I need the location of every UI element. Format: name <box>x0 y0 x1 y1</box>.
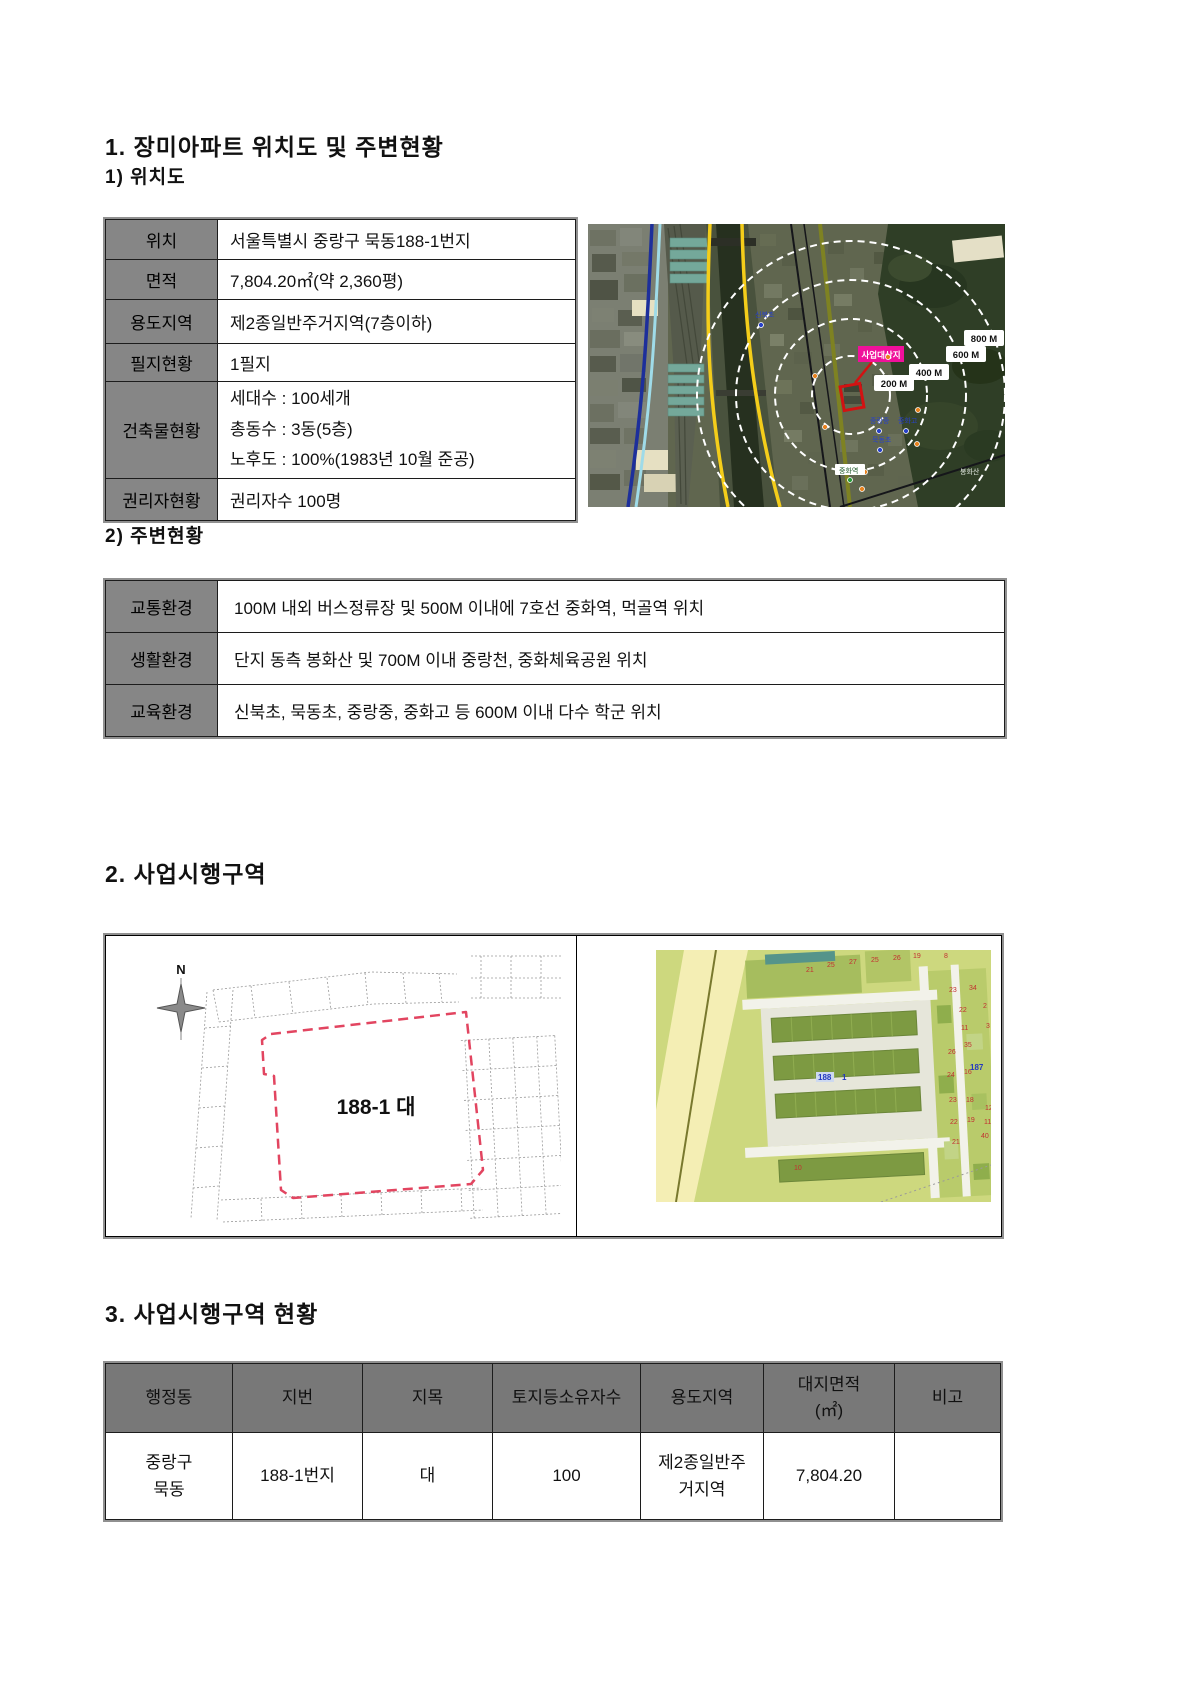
section2-heading: 2. 사업시행구역 <box>105 855 1005 889</box>
poi-school2: 중랑중 <box>870 417 890 425</box>
cadastral-map-cell: N 188-1 대 <box>106 936 577 1236</box>
svg-text:26: 26 <box>893 955 901 962</box>
satellite-location-map: 200 M 400 M 600 M 800 M 사업대상지 <box>588 224 1005 507</box>
location-row: 위치 서울특별시 중랑구 묵동188-1번지 면적 7,804.20㎡(약 2,… <box>105 219 1005 521</box>
poi-station: 중화역 <box>839 466 858 475</box>
svg-text:19: 19 <box>913 953 921 960</box>
col-header-land-category: 지목 <box>363 1363 493 1432</box>
col-header-lot-number: 지번 <box>233 1363 363 1432</box>
table-row: 용도지역 제2종일반주거지역(7층이하) <box>106 300 576 344</box>
table-row: 필지현황 1필지 <box>106 344 576 382</box>
location-map-subheading: 1) 위치도 <box>105 162 1005 189</box>
svg-text:11: 11 <box>984 1119 991 1126</box>
svg-text:26: 26 <box>948 1049 956 1056</box>
row-label: 위치 <box>106 220 218 260</box>
cell-zoning: 제2종일반주 거지역 <box>641 1432 764 1519</box>
svg-text:23: 23 <box>949 1097 957 1104</box>
table-row: 면적 7,804.20㎡(약 2,360평) <box>106 260 576 300</box>
ring-label-800m: 800 M <box>971 334 997 345</box>
table-row: 교통환경 100M 내외 버스정류장 및 500M 이내에 7호선 중화역, 먹… <box>106 580 1005 632</box>
site-label: 사업대상지 <box>861 350 900 360</box>
svg-text:27: 27 <box>849 959 857 966</box>
row-value: 1필지 <box>218 344 576 382</box>
section3-heading: 3. 사업시행구역 현황 <box>105 1295 1005 1329</box>
row-label: 용도지역 <box>106 300 218 344</box>
svg-text:21: 21 <box>952 1139 960 1146</box>
svg-text:24: 24 <box>947 1072 955 1079</box>
poi-school3: 중화고 <box>898 417 918 425</box>
svg-text:1: 1 <box>842 1073 847 1082</box>
svg-text:23: 23 <box>949 987 957 994</box>
svg-text:25: 25 <box>827 962 835 969</box>
district-status-table: 행정동 지번 지목 토지등소유자수 용도지역 대지면적 (㎡) 비고 중랑구 묵… <box>105 1363 1001 1520</box>
cadastral-background <box>121 948 561 1224</box>
ring-label-200m: 200 M <box>881 379 907 390</box>
table-row: 중랑구 묵동 188-1번지 대 100 제2종일반주 거지역 7,804.20 <box>106 1432 1001 1519</box>
document-content: 1. 장미아파트 위치도 및 주변현황 1) 위치도 위치 서울특별시 중랑구 … <box>105 0 1005 1520</box>
svg-text:3: 3 <box>986 1023 990 1030</box>
row-value: 7,804.20㎡(약 2,360평) <box>218 260 576 300</box>
cell-lot-number: 188-1번지 <box>233 1432 363 1519</box>
row-label: 교통환경 <box>106 580 218 632</box>
svg-text:8: 8 <box>944 953 948 960</box>
poi-school1: 신북초 <box>755 310 775 319</box>
document-page: 1. 장미아파트 위치도 및 주변현황 1) 위치도 위치 서울특별시 중랑구 … <box>0 0 1190 1682</box>
svg-text:35: 35 <box>964 1042 972 1049</box>
section1-heading: 1. 장미아파트 위치도 및 주변현황 <box>105 0 1005 162</box>
svg-text:2: 2 <box>983 1003 987 1010</box>
cadastral-map: N 188-1 대 <box>121 948 561 1224</box>
cell-site-area: 7,804.20 <box>764 1432 895 1519</box>
row-value: 권리자수 100명 <box>218 478 576 520</box>
north-label: N <box>176 962 185 977</box>
svg-text:19: 19 <box>967 1117 975 1124</box>
row-label: 면적 <box>106 260 218 300</box>
row-value: 세대수 : 100세개 총동수 : 3동(5층) 노후도 : 100%(1983… <box>218 382 576 479</box>
cell-district: 중랑구 묵동 <box>106 1432 233 1519</box>
poi-mountain: 봉화산 <box>960 467 980 476</box>
ring-label-600m: 600 M <box>953 350 979 361</box>
col-header-zoning: 용도지역 <box>641 1363 764 1432</box>
row-value: 신북초, 묵동초, 중랑중, 중화고 등 600M 이내 다수 학군 위치 <box>218 684 1005 736</box>
svg-text:34: 34 <box>969 985 977 992</box>
row-label: 건축물현황 <box>106 382 218 479</box>
svg-text:21: 21 <box>806 967 814 974</box>
table-row: 건축물현황 세대수 : 100세개 총동수 : 3동(5층) 노후도 : 100… <box>106 382 576 479</box>
row-value: 서울특별시 중랑구 묵동188-1번지 <box>218 220 576 260</box>
parcel-label: 188-1 대 <box>337 1096 416 1119</box>
location-info-table: 위치 서울특별시 중랑구 묵동188-1번지 면적 7,804.20㎡(약 2,… <box>105 219 576 521</box>
project-area-maps: N 188-1 대 <box>105 935 1002 1237</box>
landuse-map: 21 25 27 25 26 19 8 23 34 22 2 3 11 35 2… <box>656 950 991 1202</box>
col-header-remarks: 비고 <box>895 1363 1001 1432</box>
cell-owner-count: 100 <box>493 1432 641 1519</box>
svg-text:188: 188 <box>818 1073 832 1082</box>
row-label: 권리자현황 <box>106 478 218 520</box>
landuse-map-cell: 21 25 27 25 26 19 8 23 34 22 2 3 11 35 2… <box>577 936 1001 1236</box>
svg-text:22: 22 <box>950 1119 958 1126</box>
col-header-owner-count: 토지등소유자수 <box>493 1363 641 1432</box>
col-header-district: 행정동 <box>106 1363 233 1432</box>
svg-text:25: 25 <box>871 957 879 964</box>
surroundings-table: 교통환경 100M 내외 버스정류장 및 500M 이내에 7호선 중화역, 먹… <box>105 580 1005 737</box>
surroundings-subheading: 2) 주변현황 <box>105 521 1005 548</box>
row-label: 교육환경 <box>106 684 218 736</box>
svg-text:10: 10 <box>794 1165 802 1172</box>
svg-text:12: 12 <box>985 1105 991 1112</box>
table-row: 위치 서울특별시 중랑구 묵동188-1번지 <box>106 220 576 260</box>
table-row: 권리자현황 권리자수 100명 <box>106 478 576 520</box>
row-value: 제2종일반주거지역(7층이하) <box>218 300 576 344</box>
row-value: 단지 동측 봉화산 및 700M 이내 중랑천, 중화체육공원 위치 <box>218 632 1005 684</box>
svg-text:40: 40 <box>981 1133 989 1140</box>
row-value: 100M 내외 버스정류장 및 500M 이내에 7호선 중화역, 먹골역 위치 <box>218 580 1005 632</box>
ring-label-400m: 400 M <box>916 368 942 379</box>
poi-school4: 묵동초 <box>872 436 892 444</box>
cell-remarks <box>895 1432 1001 1519</box>
cell-land-category: 대 <box>363 1432 493 1519</box>
row-label: 필지현황 <box>106 344 218 382</box>
table-row: 생활환경 단지 동측 봉화산 및 700M 이내 중랑천, 중화체육공원 위치 <box>106 632 1005 684</box>
svg-text:11: 11 <box>961 1025 968 1032</box>
table-header-row: 행정동 지번 지목 토지등소유자수 용도지역 대지면적 (㎡) 비고 <box>106 1363 1001 1432</box>
svg-text:187: 187 <box>970 1063 984 1072</box>
row-label: 생활환경 <box>106 632 218 684</box>
svg-text:22: 22 <box>959 1007 967 1014</box>
svg-text:18: 18 <box>966 1097 974 1104</box>
table-row: 교육환경 신북초, 묵동초, 중랑중, 중화고 등 600M 이내 다수 학군 … <box>106 684 1005 736</box>
col-header-site-area: 대지면적 (㎡) <box>764 1363 895 1432</box>
